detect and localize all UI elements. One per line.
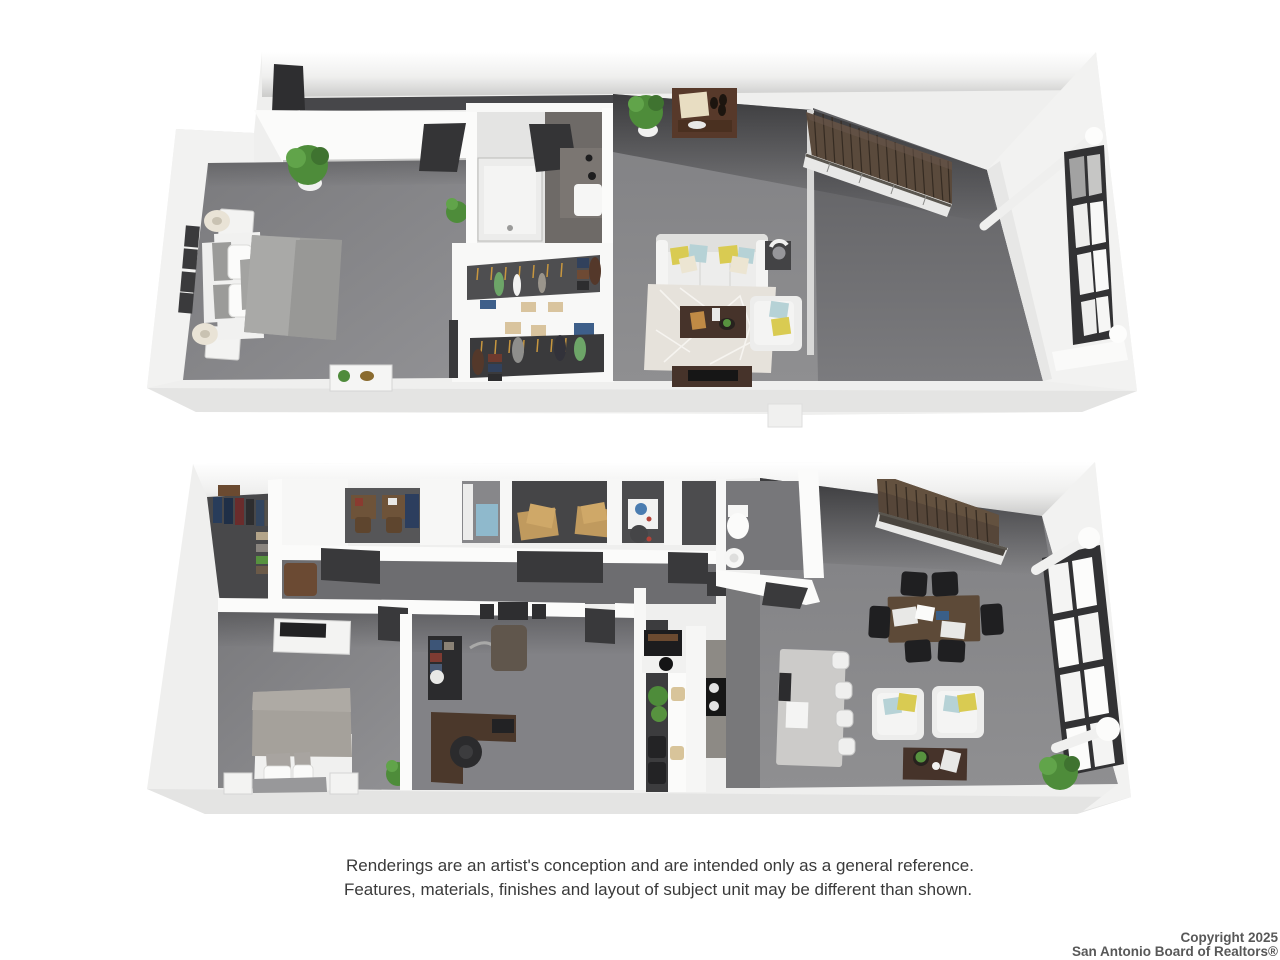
svg-text:Renderings are an artist's con: Renderings are an artist's conception an… <box>346 856 974 875</box>
svg-text:San Antonio Board of Realtors®: San Antonio Board of Realtors® <box>1072 944 1278 959</box>
svg-text:Copyright 2025: Copyright 2025 <box>1180 930 1278 945</box>
svg-text:Features, materials, finishes: Features, materials, finishes and layout… <box>344 880 972 899</box>
